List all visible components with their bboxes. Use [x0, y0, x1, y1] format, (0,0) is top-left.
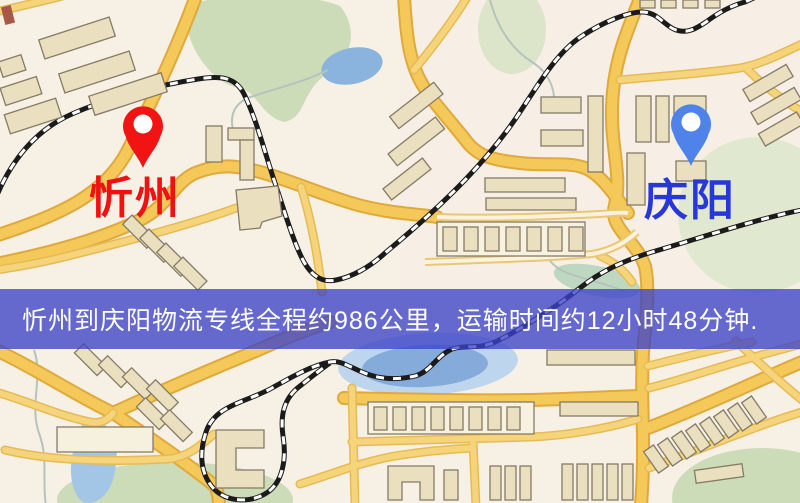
map-image — [0, 0, 800, 503]
destination-pin-icon — [669, 100, 713, 168]
route-map: 忻州 庆阳 忻州到庆阳物流专线全程约986公里，运输时间约12小时48分钟. — [0, 0, 800, 503]
route-info-banner: 忻州到庆阳物流专线全程约986公里，运输时间约12小时48分钟. — [0, 289, 800, 349]
origin-pin-hole — [134, 115, 153, 134]
destination-pin-hole — [682, 113, 701, 132]
origin-pin-icon — [121, 102, 165, 170]
route-info-text: 忻州到庆阳物流专线全程约986公里，运输时间约12小时48分钟. — [22, 301, 758, 337]
origin-city-label: 忻州 — [75, 177, 195, 221]
destination-city-label: 庆阳 — [630, 179, 750, 223]
